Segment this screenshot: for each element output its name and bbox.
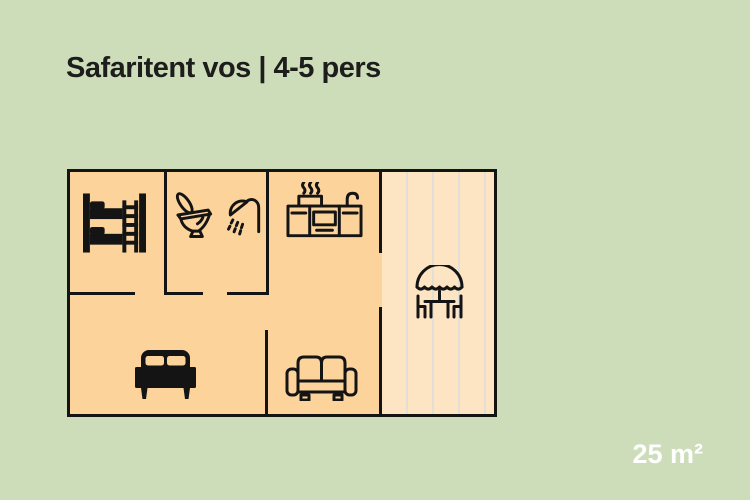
picnic-table-umbrella-icon (409, 265, 470, 324)
sofa-icon (285, 355, 358, 401)
wall-deck-upper (379, 172, 382, 253)
page: { "title": "Safaritent vos | 4-5 pers", … (0, 0, 750, 500)
page-title: Safaritent vos | 4-5 pers (66, 52, 381, 85)
wall-bathroom-left (164, 172, 167, 294)
bunk-bed-icon (83, 191, 146, 255)
wall-bathroom-bottom-left (164, 292, 203, 295)
floor-plan (67, 169, 497, 417)
wall-bedroom-right (265, 330, 268, 414)
shower-icon (226, 195, 267, 237)
kitchen-icon (286, 182, 363, 240)
double-bed-icon (132, 350, 199, 401)
wall-bathroom-bottom-right (227, 292, 269, 295)
area-label: 25 m² (632, 439, 703, 470)
wall-bunkroom-bottom (70, 292, 135, 295)
toilet-icon (174, 191, 217, 239)
wall-deck-lower (379, 307, 382, 414)
